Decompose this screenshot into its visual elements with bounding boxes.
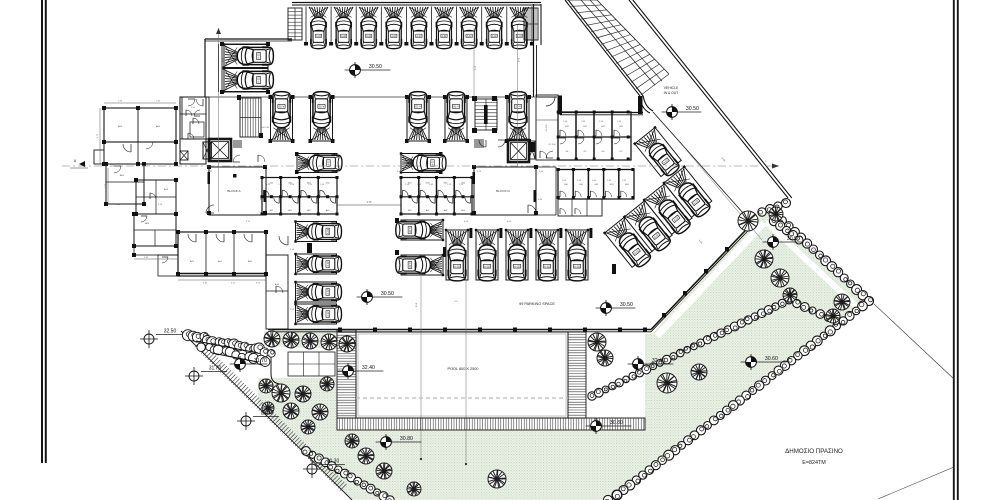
svg-text:A02: A02 <box>190 260 195 263</box>
svg-text:0/61: 0/61 <box>579 184 583 186</box>
svg-text:2.30: 2.30 <box>617 121 622 123</box>
svg-text:1.80: 1.80 <box>581 121 586 123</box>
svg-text:0/63: 0/63 <box>610 184 614 186</box>
svg-text:1.45: 1.45 <box>622 180 627 182</box>
svg-text:3.30: 3.30 <box>203 283 208 285</box>
svg-text:A-03: A-03 <box>275 283 280 286</box>
svg-text:6.0: 6.0 <box>455 301 459 303</box>
svg-text:BLOCK D: BLOCK D <box>496 189 510 193</box>
svg-text:A03: A03 <box>156 125 161 128</box>
svg-text:0/02: 0/02 <box>601 126 605 128</box>
svg-text:30.80: 30.80 <box>610 420 623 426</box>
svg-text:VEHICLE: VEHICLE <box>664 86 679 90</box>
svg-text:E=824TM: E=824TM <box>802 460 826 466</box>
svg-text:6.50: 6.50 <box>416 302 418 307</box>
svg-text:5.10: 5.10 <box>246 221 251 223</box>
svg-text:1.35: 1.35 <box>278 184 283 186</box>
svg-text:0/7: 0/7 <box>620 151 623 153</box>
svg-text:1.40: 1.40 <box>429 184 434 186</box>
svg-text:A02: A02 <box>288 209 291 212</box>
svg-text:1.40: 1.40 <box>320 184 325 186</box>
svg-text:0/6: 0/6 <box>602 151 605 153</box>
svg-text:6.00: 6.00 <box>519 57 521 62</box>
svg-text:32.40: 32.40 <box>362 365 375 371</box>
svg-text:IN & OUT: IN & OUT <box>664 91 679 95</box>
svg-text:3.20: 3.20 <box>256 283 261 285</box>
svg-text:3.75: 3.75 <box>97 133 99 138</box>
svg-text:1.90: 1.90 <box>118 101 123 103</box>
svg-text:32.50: 32.50 <box>164 329 177 335</box>
svg-text:1.50: 1.50 <box>562 180 567 182</box>
svg-text:1.60: 1.60 <box>563 121 568 123</box>
svg-text:1.35: 1.35 <box>447 184 452 186</box>
svg-text:30.30: 30.30 <box>327 459 340 465</box>
svg-text:3.25: 3.25 <box>231 283 236 285</box>
svg-text:A01: A01 <box>218 260 223 263</box>
svg-text:30.50: 30.50 <box>686 106 699 112</box>
svg-text:31.70: 31.70 <box>209 366 222 372</box>
svg-text:1.30: 1.30 <box>417 184 422 186</box>
svg-text:30.50: 30.50 <box>787 236 800 242</box>
svg-text:0/03: 0/03 <box>619 126 623 128</box>
svg-text:A04: A04 <box>461 209 464 212</box>
svg-text:3.60: 3.60 <box>538 199 543 201</box>
svg-text:31.00: 31.00 <box>261 411 274 417</box>
svg-text:30.80: 30.80 <box>400 436 413 442</box>
svg-text:5.0 4.50: 5.0 4.50 <box>546 124 548 132</box>
svg-text:4.20: 4.20 <box>477 171 482 173</box>
svg-text:3.20: 3.20 <box>158 204 163 206</box>
svg-text:1.60: 1.60 <box>592 180 597 182</box>
svg-text:0/01: 0/01 <box>270 183 274 185</box>
svg-text:0/60: 0/60 <box>564 184 568 186</box>
svg-text:1.70: 1.70 <box>367 201 372 204</box>
svg-text:1.50: 1.50 <box>599 121 604 123</box>
svg-text:2.40: 2.40 <box>290 249 295 251</box>
svg-text:32.40: 32.40 <box>652 358 665 364</box>
svg-text:A04: A04 <box>326 209 329 212</box>
svg-text:A03: A03 <box>444 209 447 212</box>
svg-text:1.30: 1.30 <box>290 184 295 186</box>
svg-text:0/64: 0/64 <box>625 184 629 186</box>
svg-text:30.50: 30.50 <box>381 291 394 297</box>
svg-text:x: x <box>765 160 767 163</box>
svg-text:A01: A01 <box>270 209 273 212</box>
svg-text:30.50: 30.50 <box>620 302 633 308</box>
svg-text:A04: A04 <box>164 188 169 191</box>
svg-text:1.90: 1.90 <box>156 101 161 103</box>
svg-text:1.40: 1.40 <box>607 180 612 182</box>
svg-text:A01: A01 <box>408 209 411 212</box>
svg-text:6.00: 6.00 <box>475 65 477 70</box>
svg-text:0/5: 0/5 <box>584 151 587 153</box>
svg-text:0/00: 0/00 <box>565 126 569 128</box>
svg-text:A03: A03 <box>307 209 310 212</box>
svg-text:A06: A06 <box>118 125 123 128</box>
svg-text:A08: A08 <box>145 222 150 225</box>
svg-text:30.60: 30.60 <box>765 356 778 362</box>
svg-text:3.20: 3.20 <box>539 171 544 173</box>
svg-text:6.00: 6.00 <box>721 158 726 163</box>
svg-text:POOL 800 X 2500: POOL 800 X 2500 <box>448 367 479 371</box>
svg-text:30.50: 30.50 <box>369 64 382 70</box>
svg-text:0.5 4.50: 0.5 4.50 <box>548 144 556 146</box>
svg-text:BLOCK A: BLOCK A <box>227 189 241 193</box>
svg-text:1.50: 1.50 <box>290 309 295 311</box>
svg-text:1.50: 1.50 <box>577 180 582 182</box>
svg-text:A05: A05 <box>120 174 125 177</box>
svg-text:A: A <box>74 159 77 163</box>
svg-text:4.50: 4.50 <box>464 221 469 223</box>
svg-text:6.00 4.00: 6.00 4.00 <box>261 127 270 129</box>
svg-text:2.50: 2.50 <box>191 107 196 109</box>
svg-text:4.90: 4.90 <box>698 240 703 245</box>
svg-text:1.50: 1.50 <box>308 184 313 186</box>
svg-text:0/62: 0/62 <box>595 184 599 186</box>
svg-text:99 PARKING SPACE: 99 PARKING SPACE <box>519 302 555 306</box>
svg-text:6.20: 6.20 <box>208 171 213 173</box>
svg-text:0/4: 0/4 <box>566 151 569 153</box>
svg-text:4.50: 4.50 <box>507 221 512 223</box>
svg-text:0/04: 0/04 <box>326 183 330 185</box>
svg-text:2.40: 2.40 <box>144 257 149 259</box>
svg-text:A02: A02 <box>426 209 429 212</box>
svg-text:0/01: 0/01 <box>583 126 587 128</box>
svg-text:31.70: 31.70 <box>254 358 267 364</box>
svg-text:ΔΗΜΟΣΙΟ ΠΡΑΣΙΝΟ: ΔΗΜΟΣΙΟ ΠΡΑΣΙΝΟ <box>785 448 843 455</box>
svg-text:A00: A00 <box>248 260 253 263</box>
